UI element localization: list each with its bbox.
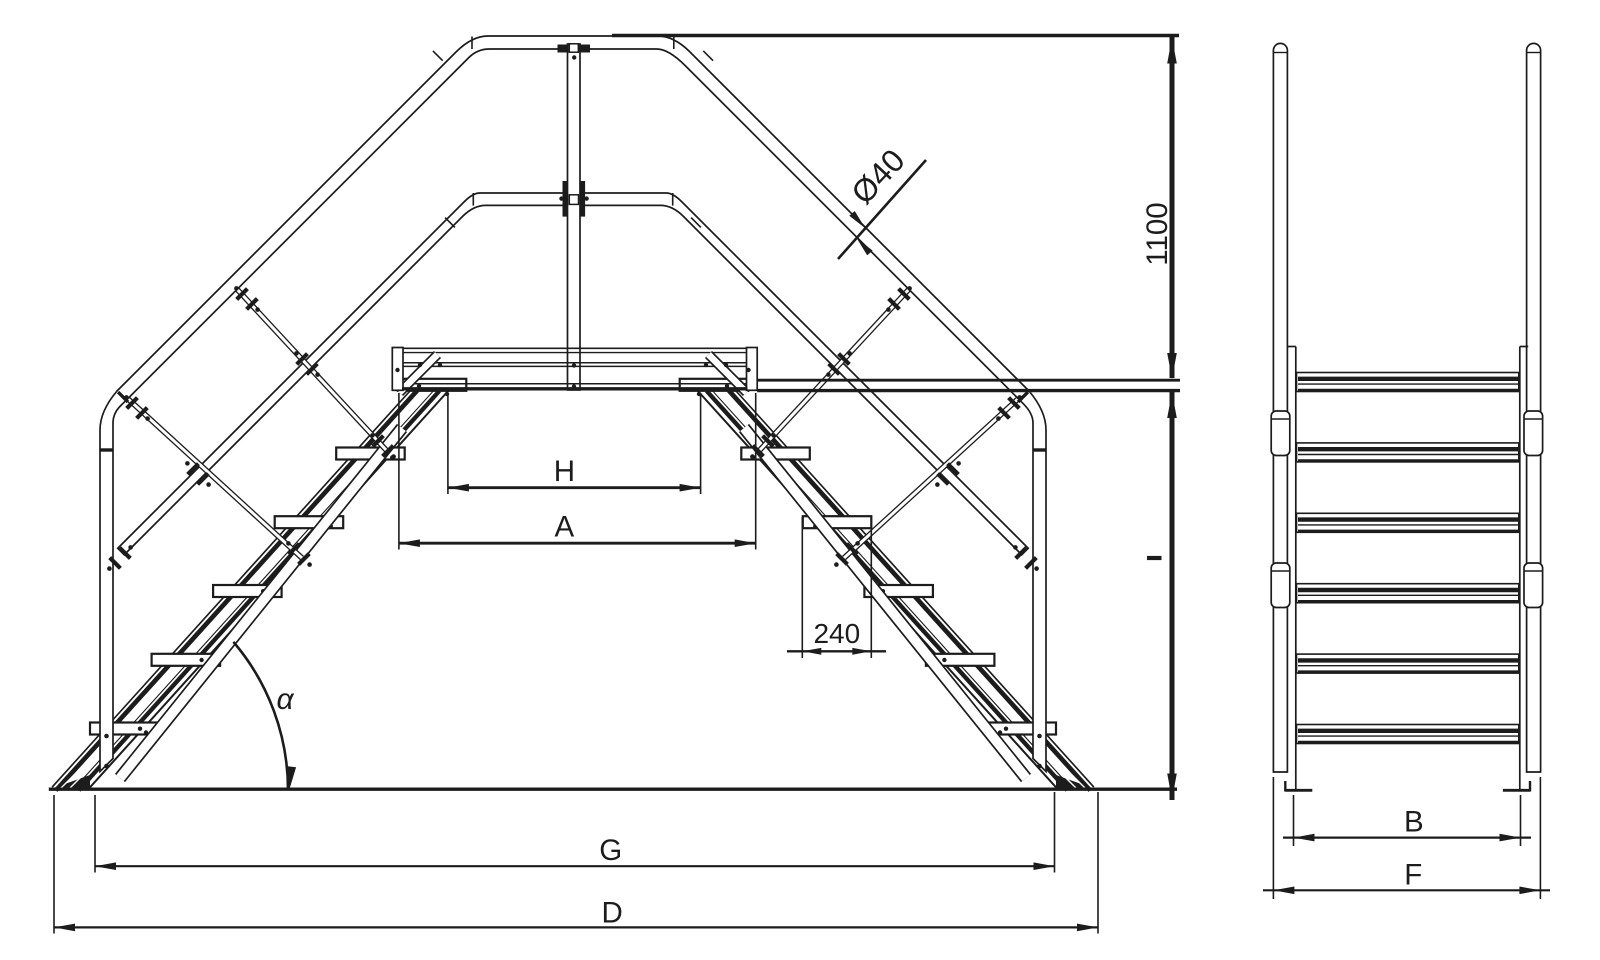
svg-text:F: F [1404, 859, 1422, 892]
svg-text:G: G [599, 834, 622, 867]
svg-text:A: A [555, 510, 575, 543]
svg-text:240: 240 [813, 618, 860, 649]
svg-text:1100: 1100 [1141, 202, 1174, 265]
svg-text:D: D [602, 896, 623, 929]
svg-text:H: H [554, 455, 575, 488]
svg-text:α: α [276, 683, 294, 716]
svg-text:B: B [1404, 806, 1424, 839]
